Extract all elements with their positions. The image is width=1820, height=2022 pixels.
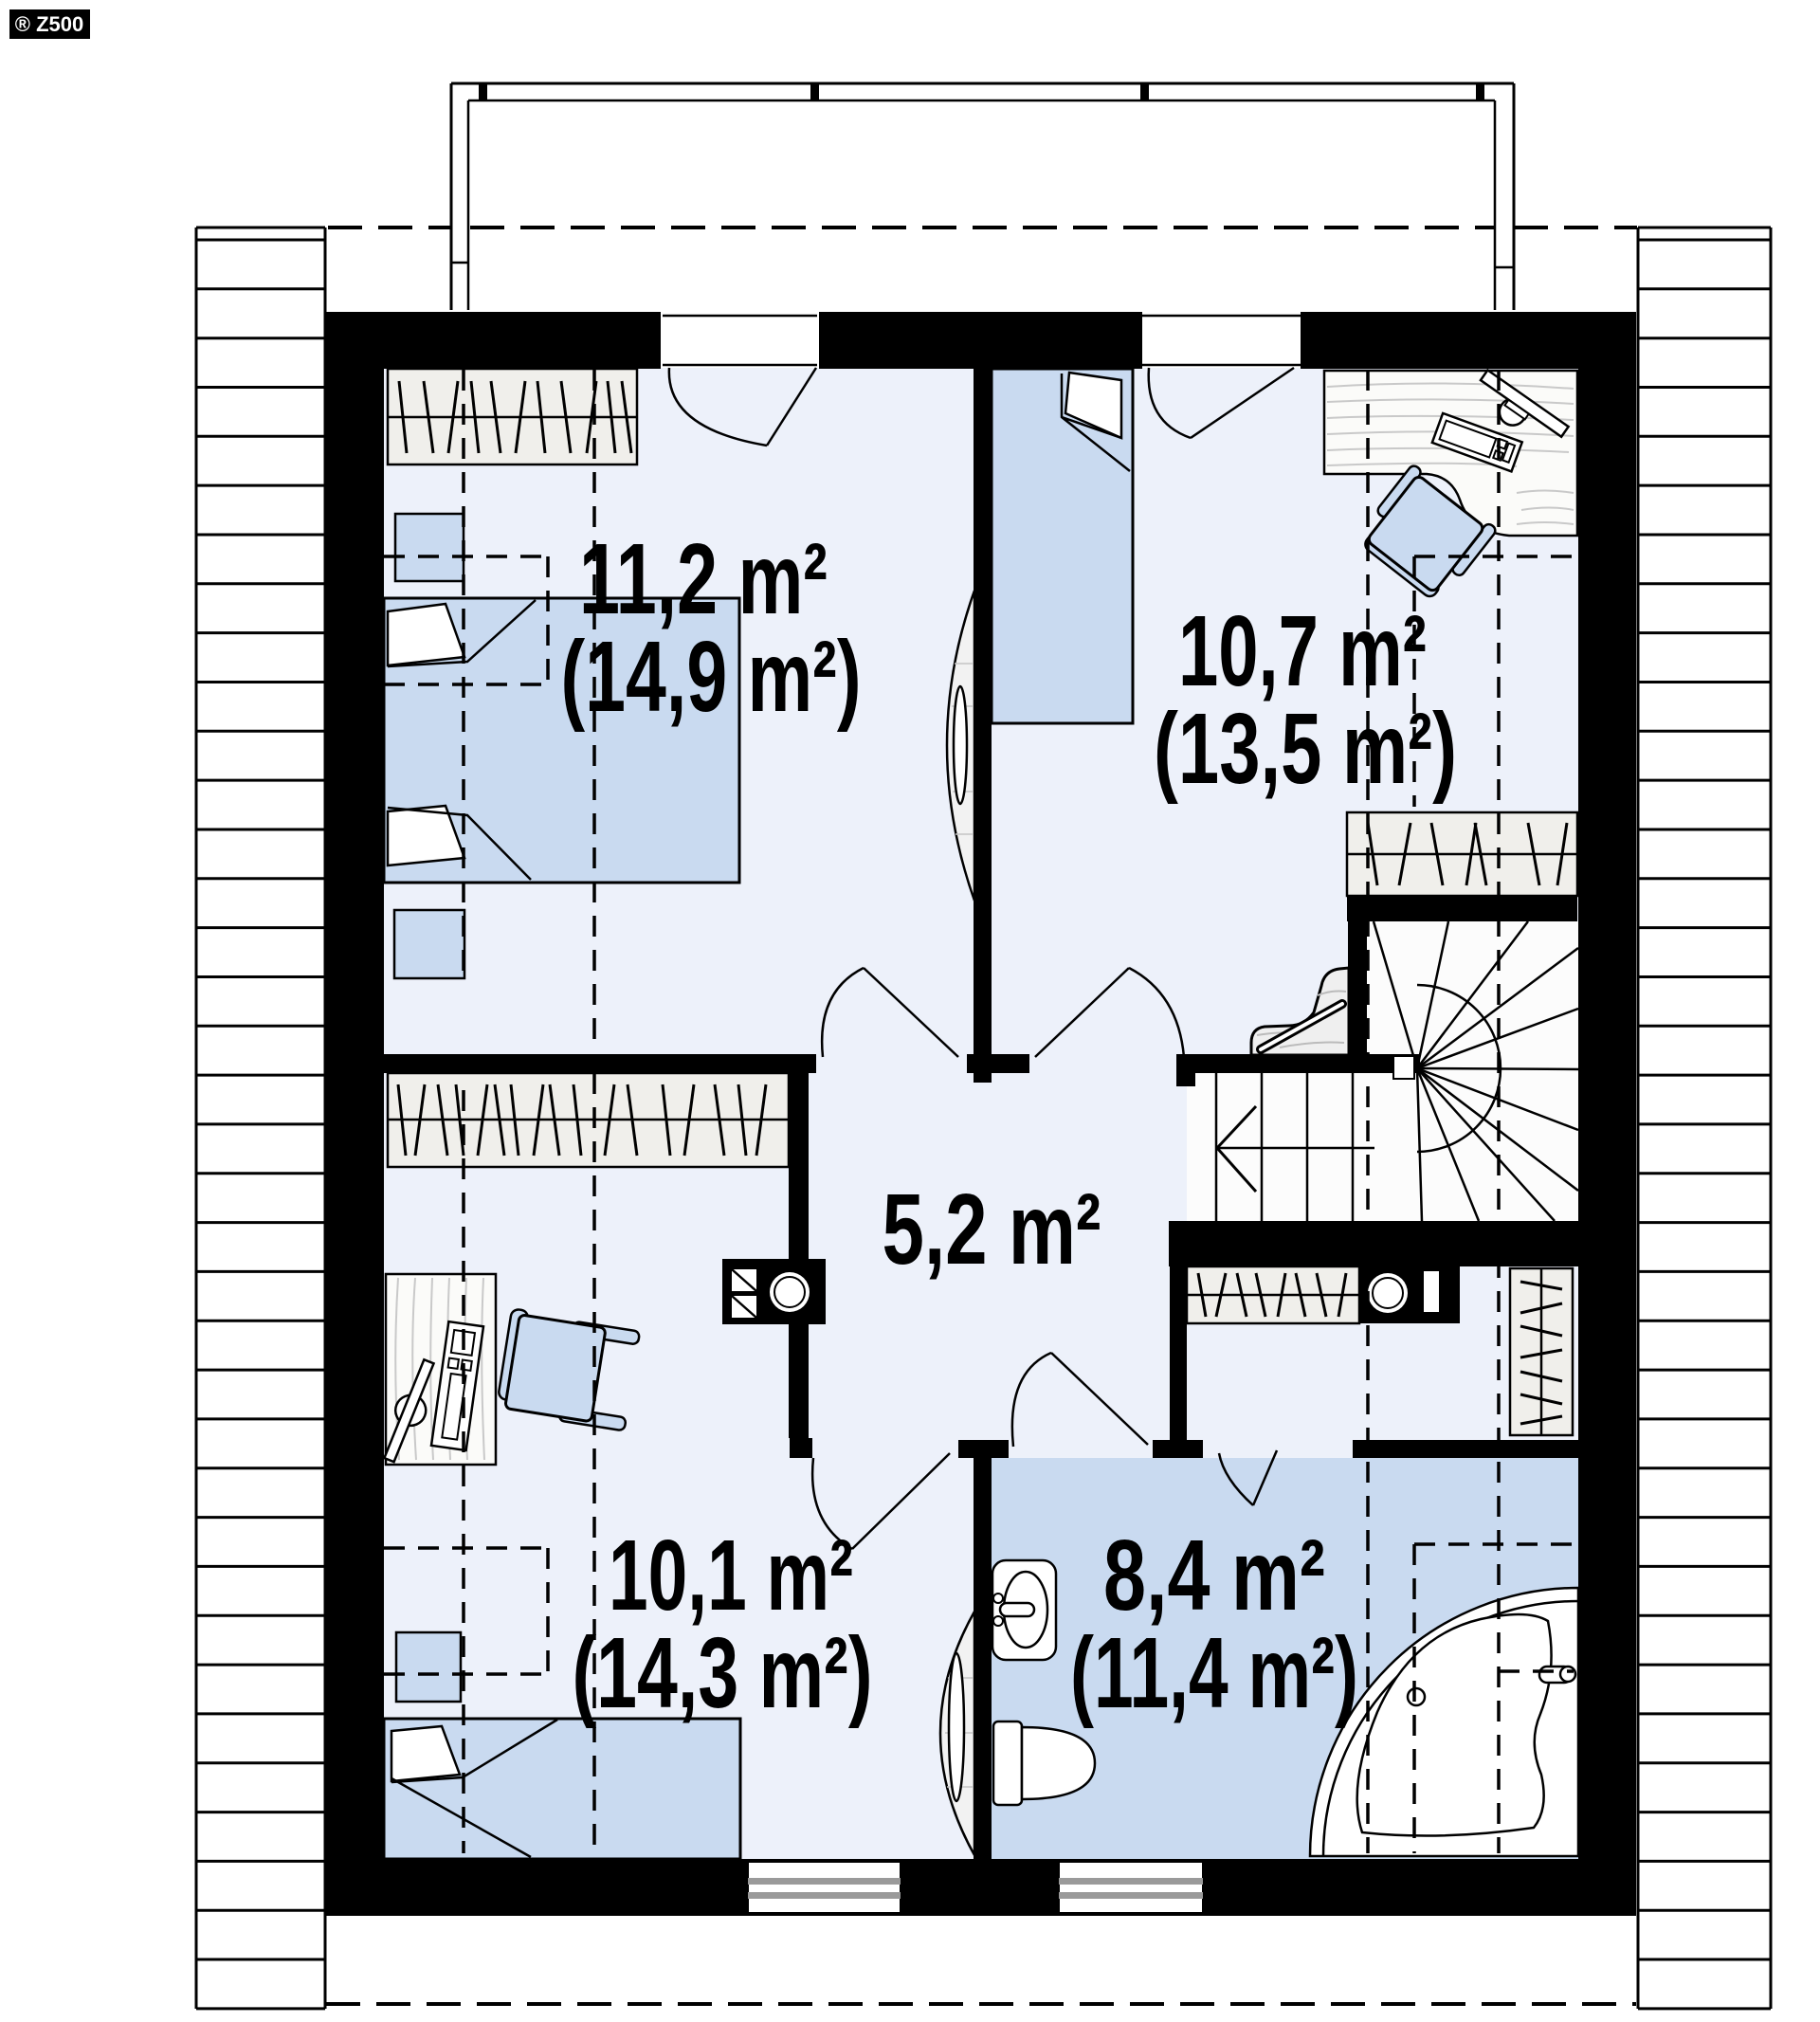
svg-text:(11,4 m²): (11,4 m²) xyxy=(1070,1617,1358,1729)
svg-text:11,2 m²: 11,2 m² xyxy=(579,523,828,635)
svg-text:5,2 m²: 5,2 m² xyxy=(883,1174,1101,1285)
svg-text:10,1 m²: 10,1 m² xyxy=(609,1520,853,1631)
svg-text:8,4 m²: 8,4 m² xyxy=(1103,1520,1325,1631)
svg-text:® Z500: ® Z500 xyxy=(15,12,83,36)
svg-text:(14,9 m²): (14,9 m²) xyxy=(561,621,862,733)
svg-text:(13,5 m²): (13,5 m²) xyxy=(1154,693,1457,805)
svg-text:(14,3 m²): (14,3 m²) xyxy=(573,1617,873,1729)
svg-text:10,7 m²: 10,7 m² xyxy=(1178,595,1427,707)
